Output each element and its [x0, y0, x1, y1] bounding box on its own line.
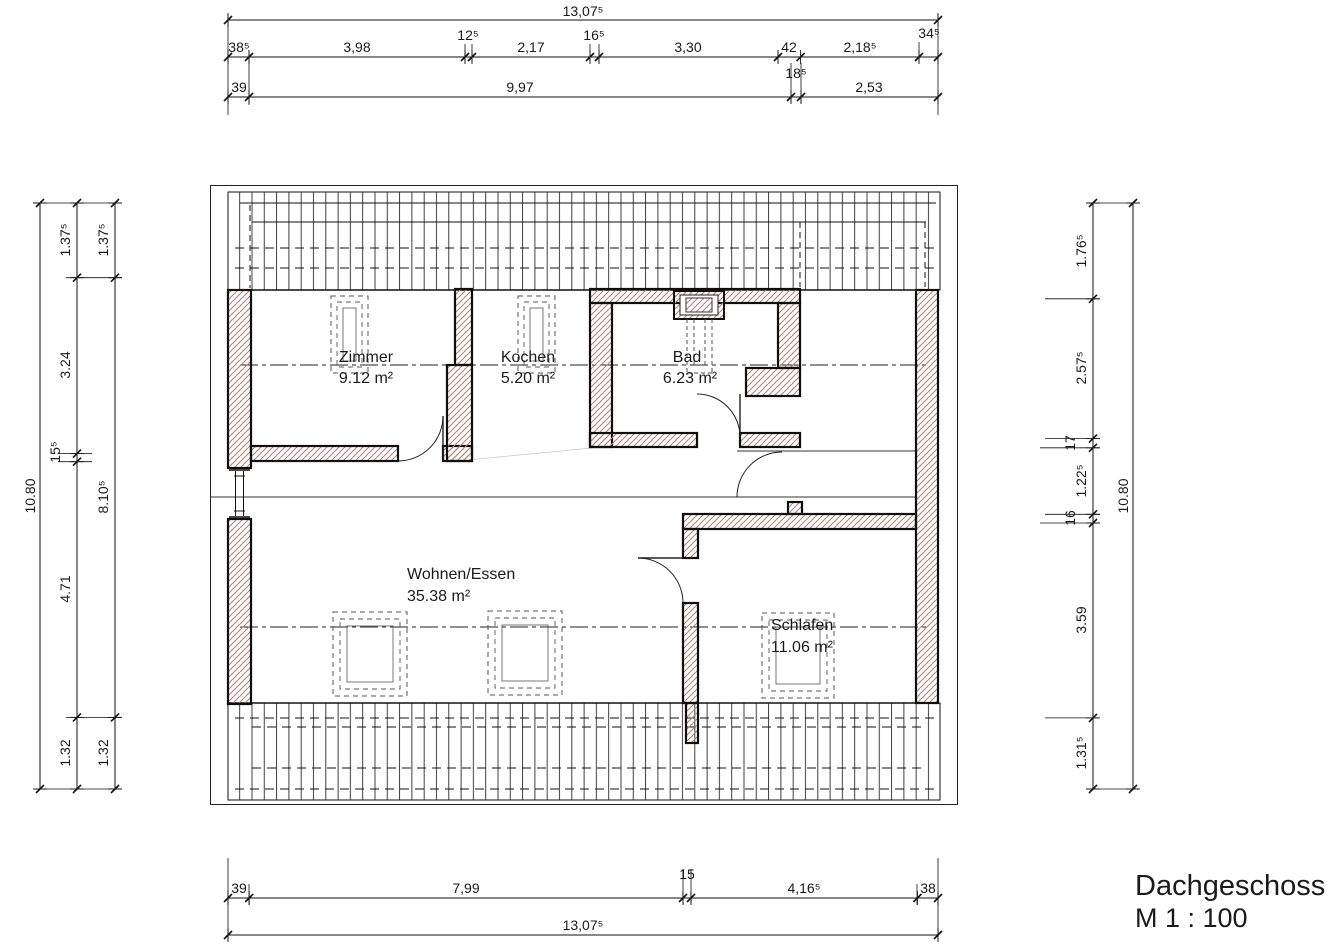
wall-exterior-left-upper: [228, 290, 251, 468]
floor-plan-drawing: Zimmer 9.12 m² Kochen 5.20 m² Bad 6.23 m…: [0, 0, 1335, 947]
wall-bad-east-step: [746, 368, 800, 396]
roof-window-wohnen-west: [333, 612, 407, 696]
dim-top-total: 13,07⁵: [563, 3, 604, 19]
dim-left-b2: 1.32: [95, 739, 111, 766]
dim-right-6: 1.31⁵: [1073, 736, 1089, 769]
door-schlafen: [638, 558, 683, 603]
dim-right-2: 17: [1062, 435, 1078, 451]
door-corridor: [737, 452, 782, 497]
dim-right-total: 10.80: [1115, 478, 1131, 513]
drawing-title: Dachgeschoss: [1135, 870, 1325, 902]
dim-top-5: 3,30: [674, 39, 701, 55]
dim-bottom-2: 15: [679, 866, 695, 882]
dim-right-5: 3.59: [1073, 606, 1089, 633]
wall-schlafen-west-upper: [683, 529, 698, 558]
dim-left-a3: 4.71: [57, 575, 73, 602]
dimensions-top: 13,07⁵ 38⁵ 3,98 12⁵ 2,17 16⁵ 3,30 42 2,1…: [228, 3, 939, 95]
wall-zimmer-east-lower: [447, 365, 472, 461]
dim-top-sub: 18⁵: [785, 65, 806, 81]
dimensions-bottom: 39 7,99 15 4,16⁵ 38 13,07⁵: [231, 866, 936, 933]
wall-schlafen-north-tab: [788, 502, 802, 514]
wall-exterior-left-lower: [228, 519, 251, 704]
dim-top-6: 42: [781, 39, 797, 55]
wall-exterior-right: [916, 290, 938, 703]
drawing-scale: M 1 : 100: [1135, 903, 1248, 933]
dim-left-total: 10.80: [22, 478, 38, 513]
door-zimmer: [398, 416, 443, 461]
dim-right-3: 1.22⁵: [1073, 464, 1089, 497]
reference-lines: [211, 365, 928, 627]
wall-schlafen-north: [683, 514, 916, 529]
dim-left-a2: 15⁵: [47, 441, 63, 462]
room-name-bad: Bad: [673, 349, 701, 366]
dim-bottom-0: 39: [231, 880, 247, 896]
dimensions-left: 10.80 1.37⁵ 3.24 15⁵ 4.71 1.32 1.37⁵ 8.1…: [22, 223, 111, 766]
dim-top-1: 3,98: [343, 39, 370, 55]
wall-stub-bottom: [686, 703, 698, 743]
dim-bottom-1: 7,99: [452, 880, 479, 896]
dim-bottom-4: 38: [920, 880, 936, 896]
dim-bottom-total: 13,07⁵: [563, 917, 604, 933]
dim-right-1: 2.57⁵: [1073, 351, 1089, 384]
dim-top2-2: 2,53: [855, 79, 882, 95]
dim-left-a1: 3.24: [57, 351, 73, 378]
wall-bad-south-left: [590, 433, 697, 447]
roof-band-top: [228, 192, 940, 290]
roof-window-wohnen-east: [488, 611, 562, 695]
floor-plan-sheet: Zimmer 9.12 m² Kochen 5.20 m² Bad 6.23 m…: [0, 0, 1335, 947]
dim-top-7: 2,18⁵: [843, 39, 876, 55]
wall-schlafen-west-lower: [683, 603, 698, 703]
room-area-schlafen: 11.06 m²: [771, 639, 834, 656]
roof-band-bottom: [228, 703, 940, 800]
dim-left-b0: 1.37⁵: [95, 223, 111, 256]
room-name-zimmer: Zimmer: [339, 349, 394, 366]
dim-left-a0: 1.37⁵: [57, 223, 73, 256]
window-left-wall: [229, 470, 250, 517]
wall-zimmer-south: [251, 446, 398, 461]
room-name-schlafen: Schlafen: [771, 617, 833, 634]
dimension-lines-and-ticks: [33, 13, 1140, 942]
walls: [228, 289, 938, 743]
dim-left-a4: 1.32: [57, 739, 73, 766]
room-name-kochen: Kochen: [501, 349, 555, 366]
wall-bad-east: [778, 303, 800, 368]
dim-bottom-3: 4,16⁵: [787, 880, 820, 896]
dim-top-4: 16⁵: [583, 27, 604, 43]
title-block: Dachgeschoss M 1 : 100: [1135, 870, 1325, 933]
room-area-wohnen: 35.38 m²: [407, 588, 471, 605]
room-area-kochen: 5.20 m²: [501, 370, 556, 387]
dim-top-8: 34⁵: [918, 25, 939, 41]
wall-bad-south-right: [740, 433, 800, 447]
dim-right-0: 1.76⁵: [1073, 234, 1089, 267]
dim-top2-0: 39: [231, 79, 247, 95]
room-name-wohnen: Wohnen/Essen: [407, 566, 515, 583]
dim-left-b1: 8.10⁵: [95, 480, 111, 513]
door-bad: [697, 394, 740, 437]
wall-bad-west: [590, 303, 612, 447]
room-area-zimmer: 9.12 m²: [339, 370, 394, 387]
room-area-bad: 6.23 m²: [663, 370, 718, 387]
dim-top-2: 12⁵: [457, 27, 478, 43]
dim-top-3: 2,17: [517, 39, 544, 55]
wall-zimmer-east-upper: [455, 289, 472, 365]
dimensions-right: 1.76⁵ 2.57⁵ 17 1.22⁵ 16 3.59 1.31⁵ 10.80: [1062, 234, 1131, 769]
dim-right-4: 16: [1062, 510, 1078, 526]
dim-top2-1: 9,97: [506, 79, 533, 95]
